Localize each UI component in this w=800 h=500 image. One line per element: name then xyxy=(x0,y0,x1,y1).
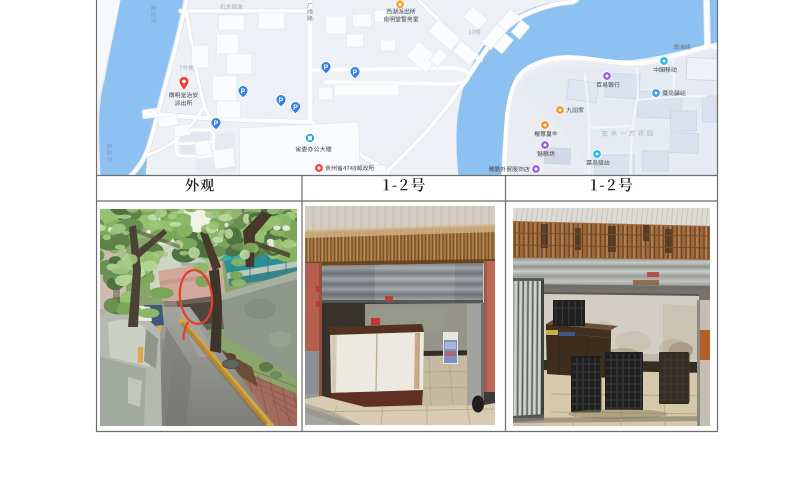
svg-text:P: P xyxy=(279,97,284,104)
svg-text:P: P xyxy=(214,120,219,127)
svg-text:P: P xyxy=(324,64,329,71)
svg-text:P: P xyxy=(293,104,298,111)
svg-text:P: P xyxy=(241,88,246,95)
svg-text:P: P xyxy=(353,69,358,76)
